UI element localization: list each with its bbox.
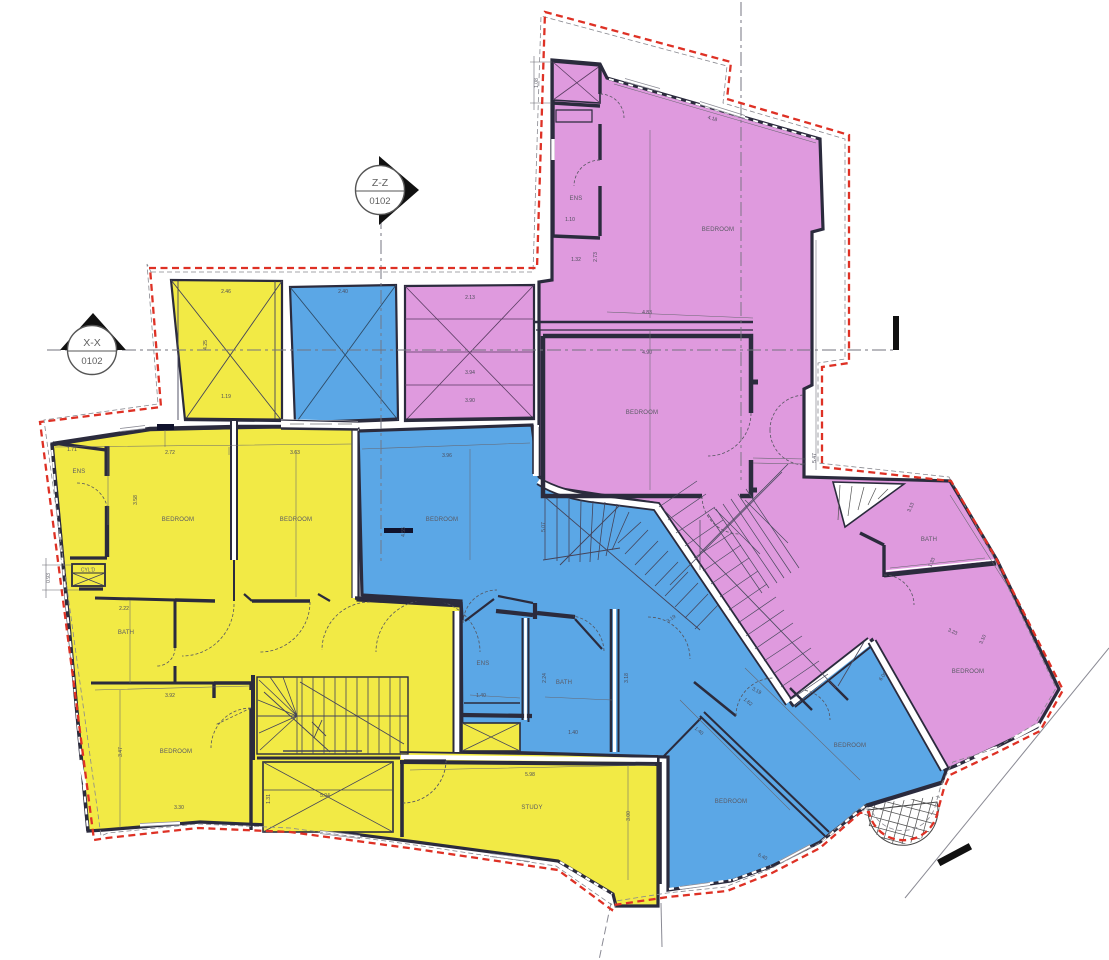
svg-text:2.13: 2.13	[465, 295, 475, 301]
svg-text:3.92: 3.92	[165, 693, 175, 699]
svg-text:3.30: 3.30	[174, 805, 184, 811]
svg-text:1.40: 1.40	[568, 730, 578, 736]
svg-text:4.90: 4.90	[642, 350, 652, 356]
svg-text:X-X: X-X	[83, 337, 101, 349]
svg-text:3.63: 3.63	[290, 450, 300, 456]
svg-text:5.98: 5.98	[525, 772, 535, 778]
svg-text:BATH: BATH	[118, 630, 134, 636]
svg-text:4.83: 4.83	[642, 310, 652, 316]
svg-text:0102: 0102	[369, 196, 390, 207]
svg-text:3.47: 3.47	[118, 747, 124, 757]
svg-text:3.96: 3.96	[442, 453, 452, 459]
svg-text:BEDROOM: BEDROOM	[715, 799, 747, 805]
svg-text:BEDROOM: BEDROOM	[702, 227, 734, 233]
svg-text:BATH: BATH	[921, 537, 937, 543]
svg-text:1.31: 1.31	[266, 794, 272, 804]
svg-text:3.90: 3.90	[465, 398, 475, 404]
svg-text:0.93: 0.93	[46, 573, 52, 583]
svg-text:STUDY: STUDY	[521, 805, 542, 811]
svg-text:1.10: 1.10	[565, 217, 575, 223]
svg-text:BATH: BATH	[556, 680, 572, 686]
svg-text:5.04: 5.04	[320, 793, 330, 799]
svg-text:ENS: ENS	[73, 469, 86, 475]
svg-text:1.19: 1.19	[221, 394, 231, 400]
svg-text:BEDROOM: BEDROOM	[626, 410, 658, 416]
svg-text:4.25: 4.25	[203, 340, 209, 350]
svg-text:3.94: 3.94	[465, 370, 475, 376]
svg-text:BEDROOM: BEDROOM	[426, 517, 458, 523]
svg-text:2.24: 2.24	[542, 673, 548, 683]
svg-text:BEDROOM: BEDROOM	[834, 743, 866, 749]
svg-text:2.40: 2.40	[338, 289, 348, 295]
svg-text:2.46: 2.46	[221, 289, 231, 295]
svg-text:BEDROOM: BEDROOM	[160, 749, 192, 755]
svg-text:1.32: 1.32	[571, 257, 581, 263]
svg-text:2.72: 2.72	[165, 450, 175, 456]
svg-text:2.22: 2.22	[119, 606, 129, 612]
svg-text:0102: 0102	[81, 356, 102, 367]
svg-text:CYL'D: CYL'D	[81, 568, 96, 574]
svg-text:BEDROOM: BEDROOM	[162, 517, 194, 523]
svg-text:ENS: ENS	[477, 661, 490, 667]
svg-text:3.58: 3.58	[133, 495, 139, 505]
svg-text:BEDROOM: BEDROOM	[952, 669, 984, 675]
svg-text:5.47: 5.47	[812, 453, 818, 463]
svg-text:5.07: 5.07	[541, 522, 547, 532]
svg-text:ENS: ENS	[570, 196, 583, 202]
svg-text:Z-Z: Z-Z	[372, 177, 389, 189]
svg-text:4.55: 4.55	[401, 527, 407, 537]
svg-text:3.18: 3.18	[624, 673, 630, 683]
svg-text:1.71: 1.71	[67, 447, 77, 453]
svg-text:2.73: 2.73	[593, 252, 599, 262]
svg-text:3.00: 3.00	[626, 811, 632, 821]
